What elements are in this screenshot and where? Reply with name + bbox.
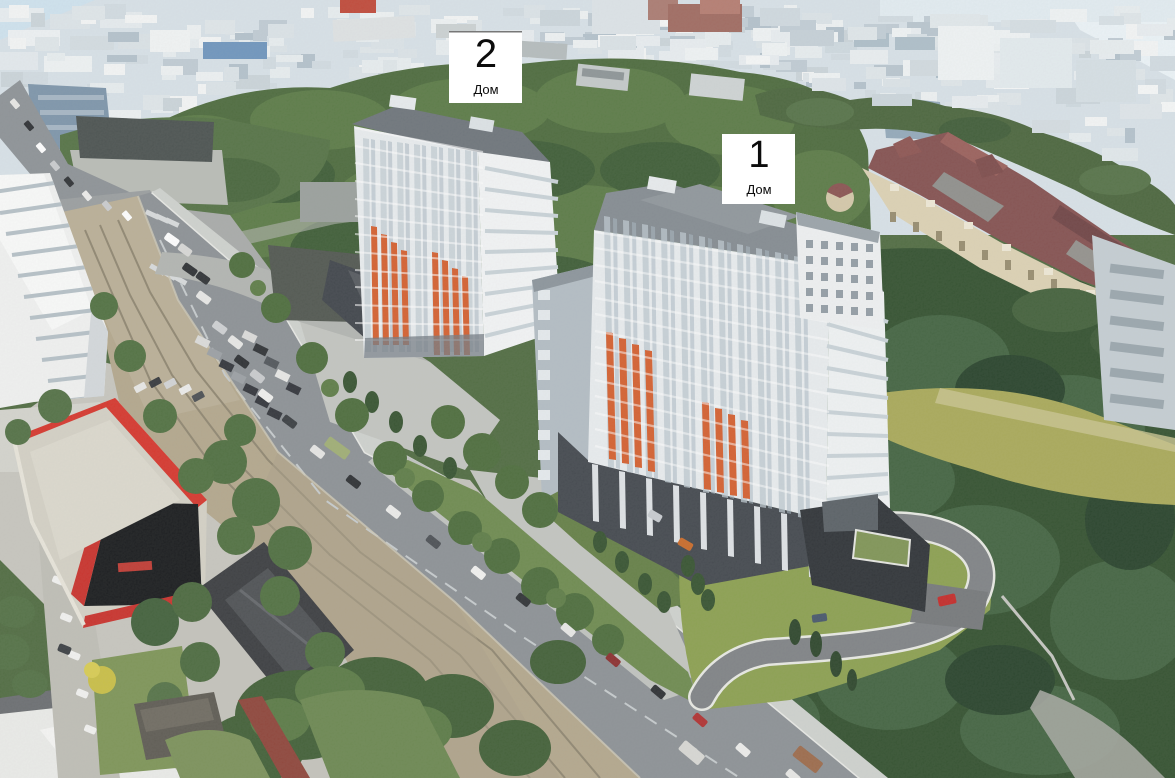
svg-text:Дом: Дом: [473, 82, 498, 97]
svg-text:Дом: Дом: [746, 182, 771, 197]
svg-text:1: 1: [748, 134, 769, 176]
svg-text:2: 2: [475, 32, 497, 76]
